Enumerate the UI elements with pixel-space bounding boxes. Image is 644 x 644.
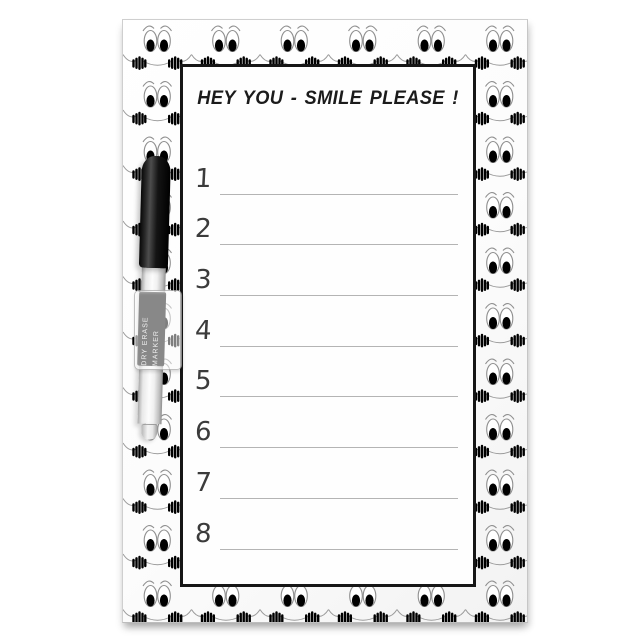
product-photo: HEY YOU - SMILE PLEASE ! 1 2 3 4 [0,0,644,644]
list-row-3: 3 [183,245,473,296]
smiley-face-icon [329,581,398,622]
smiley-face-icon [329,26,398,69]
writing-panel: HEY YOU - SMILE PLEASE ! 1 2 3 4 [180,64,476,587]
marker-cap [139,156,171,269]
writing-line [220,346,458,347]
list-row-2: 2 [183,195,473,246]
row-number: 8 [182,521,220,547]
smiley-face-icon [192,581,261,622]
writing-line [220,244,458,245]
row-number: 4 [182,318,220,344]
row-number: 5 [182,368,220,394]
smiley-face-icon [397,26,466,69]
writing-line [220,498,458,499]
list-row-1: 1 [183,144,473,195]
row-number: 3 [182,267,220,293]
dry-erase-board: HEY YOU - SMILE PLEASE ! 1 2 3 4 [122,19,528,623]
row-number: 7 [182,470,220,496]
smiley-face-icon [260,581,329,622]
list-row-5: 5 [183,347,473,398]
row-number: 6 [182,419,220,445]
smiley-face-icon [260,26,329,69]
smiley-face-icon [123,26,192,69]
writing-line [220,447,458,448]
writing-line [220,295,458,296]
marker-end-cap [141,424,157,440]
writing-line [220,194,458,195]
writing-line [220,396,458,397]
list-row-7: 7 [183,448,473,499]
list-row-4: 4 [183,296,473,347]
smiley-face-icon [192,26,261,69]
board-title: HEY YOU - SMILE PLEASE ! [189,88,467,110]
row-number: 1 [182,166,220,192]
smiley-face-icon [397,581,466,622]
smiley-face-icon [466,581,528,622]
writing-line [220,549,458,550]
list-row-6: 6 [183,397,473,448]
pen-holder-clip [134,290,182,370]
smiley-face-icon [123,581,192,622]
smiley-face-icon [466,26,528,69]
numbered-list: 1 2 3 4 5 [183,144,473,550]
list-row-8: 8 [183,499,473,550]
row-number: 2 [182,216,220,242]
